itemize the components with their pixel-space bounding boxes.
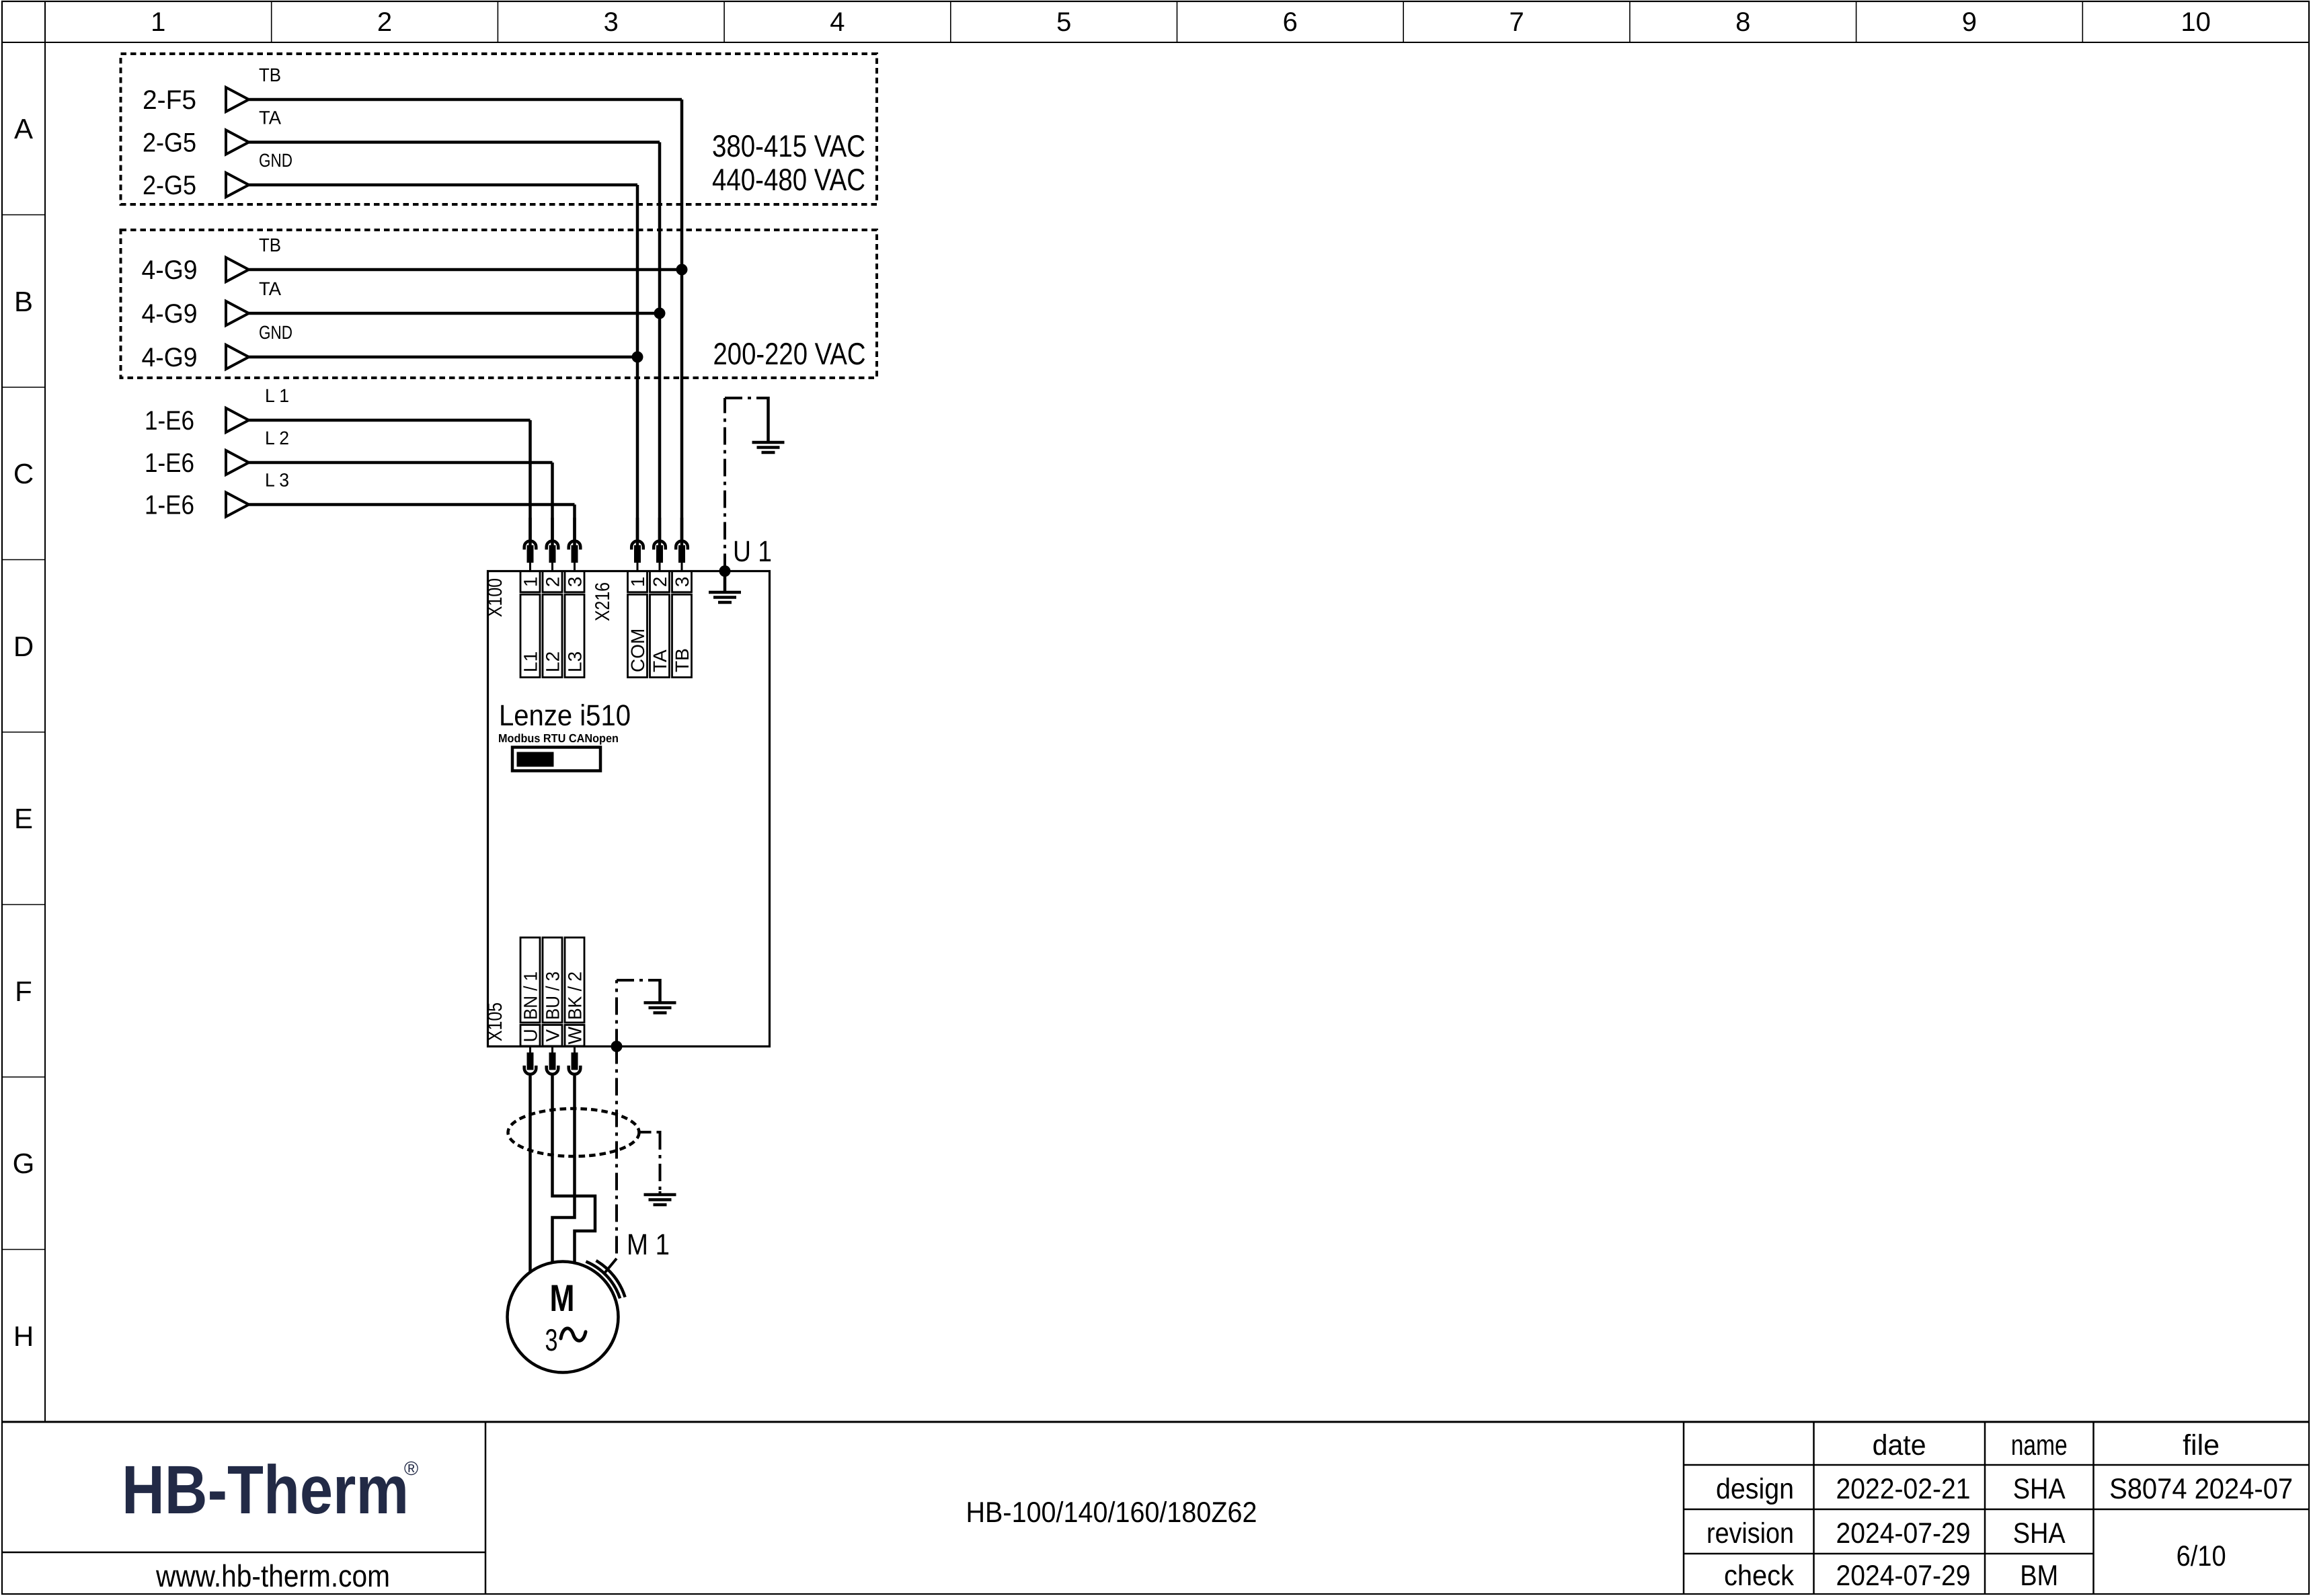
svg-text:4-G9: 4-G9 [142,299,198,329]
svg-text:X105: X105 [484,1002,506,1041]
svg-text:1: 1 [520,577,541,588]
svg-text:BM: BM [2020,1560,2058,1592]
svg-text:3: 3 [545,1322,558,1357]
svg-text:4-G9: 4-G9 [142,343,198,372]
svg-text:X100: X100 [484,578,506,617]
svg-text:L 2: L 2 [265,428,289,448]
svg-text:Modbus RTU CANopen: Modbus RTU CANopen [498,731,619,745]
svg-text:U 1: U 1 [733,535,772,568]
svg-text:date: date [1873,1429,1926,1462]
svg-text:X216: X216 [592,582,614,621]
svg-text:2022-02-21: 2022-02-21 [1836,1473,1971,1505]
svg-text:GND: GND [259,150,292,171]
svg-text:2-G5: 2-G5 [143,128,196,158]
svg-text:HB-100/140/160/180Z62: HB-100/140/160/180Z62 [966,1497,1257,1529]
svg-text:TA: TA [650,649,670,672]
svg-text:HB-Therm: HB-Therm [122,1451,409,1528]
svg-text:C: C [13,458,34,489]
svg-text:5: 5 [1056,7,1071,37]
svg-text:check: check [1724,1560,1794,1592]
svg-text:2: 2 [377,7,392,37]
svg-text:M 1: M 1 [627,1228,670,1261]
svg-text:www.hb-therm.com: www.hb-therm.com [155,1558,390,1593]
svg-text:1-E6: 1-E6 [145,491,194,520]
svg-text:file: file [2183,1429,2220,1462]
svg-text:name: name [2011,1429,2068,1462]
svg-text:2: 2 [543,577,563,588]
svg-text:L3: L3 [565,651,586,672]
svg-text:10: 10 [2181,7,2211,37]
svg-text:1: 1 [627,577,648,588]
svg-text:1-E6: 1-E6 [145,406,194,436]
svg-text:E: E [14,803,33,834]
svg-text:380-415 VAC: 380-415 VAC [712,128,865,163]
svg-text:BK / 2: BK / 2 [565,971,586,1020]
svg-text:A: A [14,113,33,145]
svg-text:S8074 2024-07: S8074 2024-07 [2109,1473,2293,1505]
svg-text:3: 3 [672,577,693,588]
svg-text:2: 2 [650,577,670,588]
svg-text:COM: COM [627,629,648,672]
svg-text:W: W [565,1026,586,1044]
svg-text:2-G5: 2-G5 [143,171,196,200]
svg-text:L 3: L 3 [265,470,289,491]
svg-text:TB: TB [672,648,693,672]
svg-text:D: D [13,631,34,662]
svg-text:SHA: SHA [2013,1473,2066,1505]
svg-text:SHA: SHA [2013,1517,2066,1550]
svg-text:revision: revision [1707,1517,1794,1550]
svg-text:9: 9 [1962,7,1977,37]
svg-text:TB: TB [259,65,281,85]
svg-text:L2: L2 [543,651,563,672]
svg-text:3: 3 [565,577,586,588]
svg-text:TA: TA [259,108,281,128]
svg-text:U: U [520,1029,541,1042]
svg-text:3: 3 [604,7,619,37]
svg-text:M: M [550,1277,575,1319]
svg-text:GND: GND [259,322,292,343]
svg-text:BN / 1: BN / 1 [520,971,541,1020]
svg-text:4-G9: 4-G9 [142,255,198,285]
svg-text:2-F5: 2-F5 [143,85,196,115]
svg-text:V: V [543,1029,563,1042]
svg-text:BU / 3: BU / 3 [543,971,563,1020]
svg-text:1-E6: 1-E6 [145,448,194,478]
svg-text:6: 6 [1283,7,1298,37]
svg-text:2024-07-29: 2024-07-29 [1836,1517,1971,1550]
svg-text:4: 4 [830,7,845,37]
svg-text:8: 8 [1735,7,1750,37]
svg-text:1: 1 [151,7,165,37]
svg-text:200-220 VAC: 200-220 VAC [713,336,866,371]
svg-text:design: design [1716,1473,1794,1505]
svg-text:L1: L1 [520,651,541,672]
svg-text:B: B [14,286,33,317]
svg-text:TB: TB [259,235,281,255]
svg-text:®: ® [404,1458,418,1480]
svg-text:2024-07-29: 2024-07-29 [1836,1560,1971,1592]
svg-text:7: 7 [1509,7,1524,37]
svg-text:H: H [13,1320,34,1352]
svg-text:G: G [13,1148,35,1179]
svg-text:L 1: L 1 [265,385,289,406]
svg-text:F: F [15,975,32,1007]
svg-text:440-480 VAC: 440-480 VAC [712,162,865,197]
svg-text:6/10: 6/10 [2177,1540,2226,1572]
svg-text:TA: TA [259,278,281,299]
svg-text:Lenze i510: Lenze i510 [499,699,631,732]
